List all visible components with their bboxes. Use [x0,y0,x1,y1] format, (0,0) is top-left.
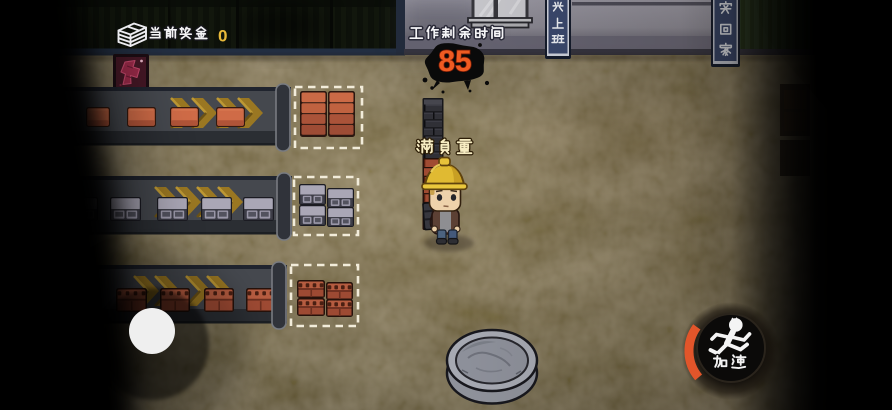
svg-text:85: 85 [438,45,471,78]
svg-text:0: 0 [218,27,227,46]
